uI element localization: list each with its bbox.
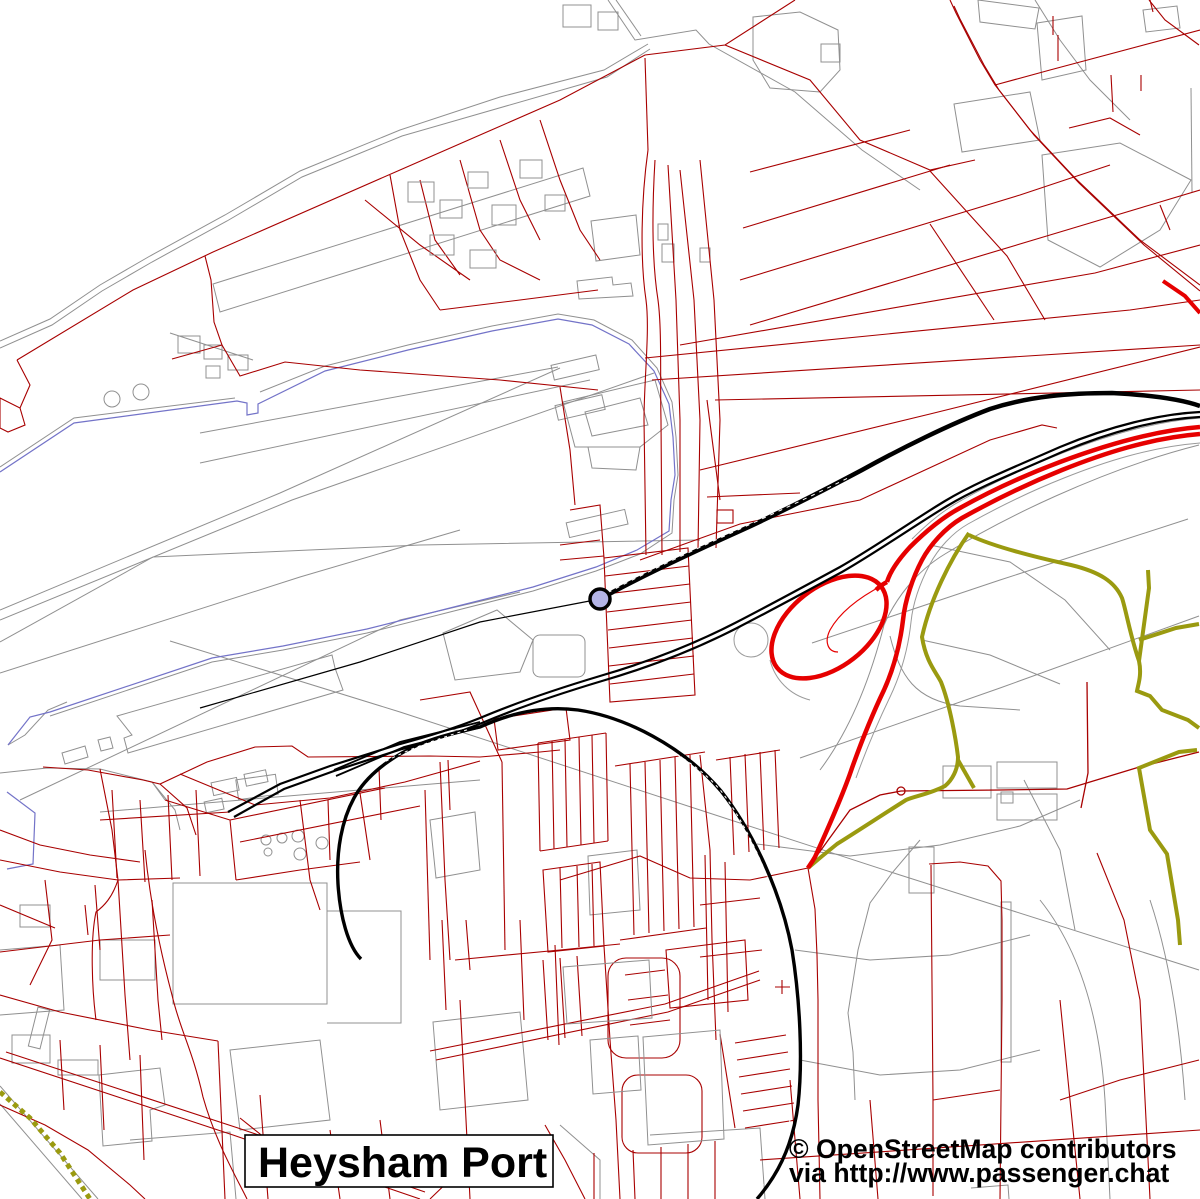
svg-text:via http://www.passenger.chat: via http://www.passenger.chat: [789, 1158, 1169, 1188]
svg-text:Heysham Port: Heysham Port: [258, 1139, 547, 1187]
